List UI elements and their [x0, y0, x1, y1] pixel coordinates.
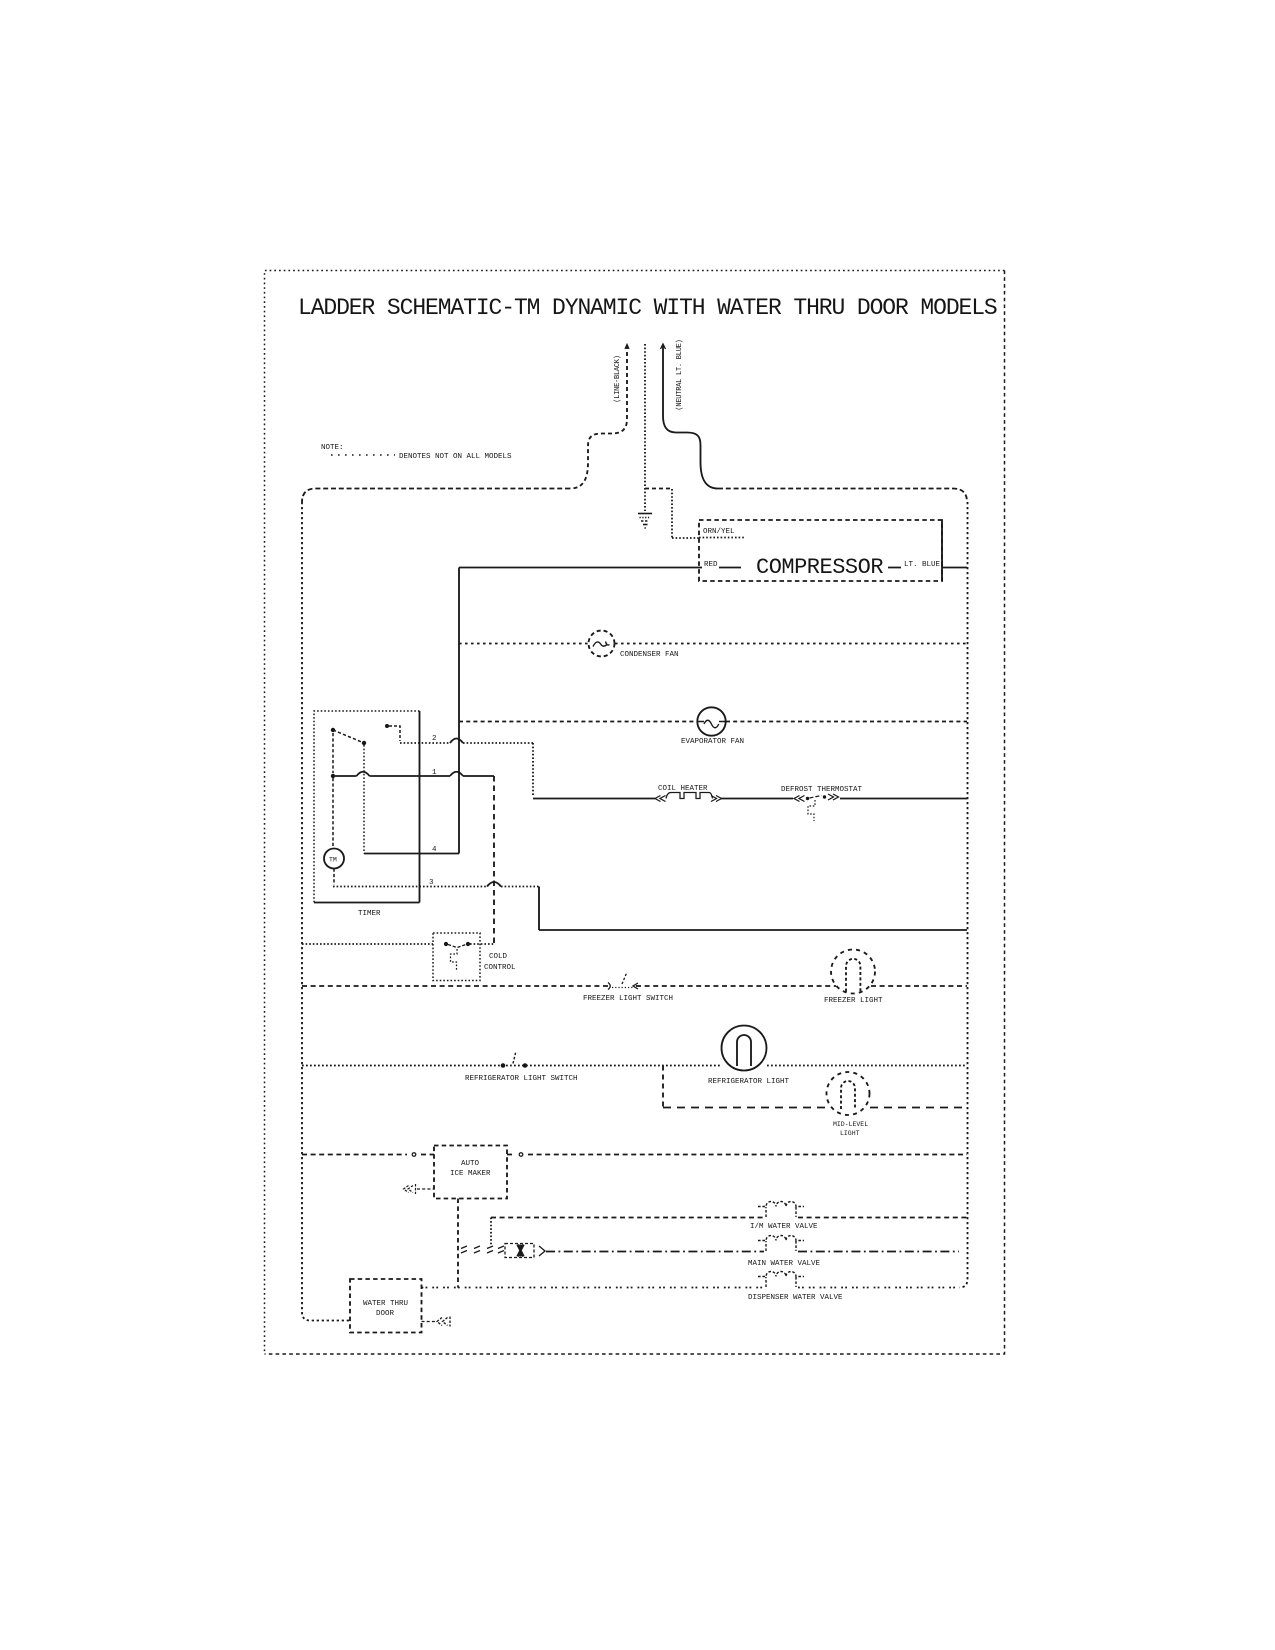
svg-text:MID-LEVEL: MID-LEVEL: [833, 1121, 868, 1128]
svg-text:ICE MAKER: ICE MAKER: [450, 1170, 491, 1178]
svg-text:FREEZER LIGHT: FREEZER LIGHT: [824, 997, 883, 1005]
svg-text:4: 4: [432, 846, 437, 854]
svg-text:RED: RED: [704, 561, 718, 569]
svg-text:(NEUTRAL LT. BLUE): (NEUTRAL LT. BLUE): [676, 339, 684, 410]
svg-text:(LINE-BLACK): (LINE-BLACK): [614, 355, 622, 402]
svg-text:TIMER: TIMER: [358, 910, 381, 918]
svg-text:WATER THRU: WATER THRU: [363, 1300, 408, 1308]
svg-text:CONDENSER FAN: CONDENSER FAN: [620, 651, 679, 659]
svg-text:2: 2: [432, 735, 437, 743]
svg-text:AUTO: AUTO: [461, 1160, 480, 1168]
svg-text:CONTROL: CONTROL: [484, 964, 516, 972]
svg-text:FREEZER LIGHT SWITCH: FREEZER LIGHT SWITCH: [583, 995, 673, 1003]
svg-text:ORN/YEL: ORN/YEL: [703, 528, 735, 536]
svg-text:COIL HEATER: COIL HEATER: [658, 785, 708, 793]
svg-text:EVAPORATOR FAN: EVAPORATOR FAN: [681, 738, 744, 746]
svg-text:MAIN WATER VALVE: MAIN WATER VALVE: [748, 1260, 821, 1268]
svg-text:DENOTES NOT ON ALL MODELS: DENOTES NOT ON ALL MODELS: [399, 453, 512, 461]
svg-text:DISPENSER WATER VALVE: DISPENSER WATER VALVE: [748, 1294, 843, 1302]
svg-text:COLD: COLD: [489, 953, 508, 961]
svg-text:LT. BLUE: LT. BLUE: [904, 561, 941, 569]
svg-text:I/M WATER VALVE: I/M WATER VALVE: [750, 1223, 818, 1231]
svg-text:TM: TM: [329, 857, 337, 864]
svg-text:DOOR: DOOR: [376, 1310, 395, 1318]
svg-text:NOTE:: NOTE:: [321, 444, 344, 452]
svg-text:1: 1: [432, 769, 437, 777]
svg-text:REFRIGERATOR LIGHT: REFRIGERATOR LIGHT: [708, 1078, 790, 1086]
svg-text:LIGHT: LIGHT: [840, 1130, 860, 1137]
svg-text:DEFROST THERMOSTAT: DEFROST THERMOSTAT: [781, 786, 863, 794]
svg-text:LADDER SCHEMATIC-TM DYNAMIC WI: LADDER SCHEMATIC-TM DYNAMIC WITH WATER T…: [298, 295, 997, 321]
svg-text:COMPRESSOR: COMPRESSOR: [756, 555, 883, 580]
svg-text:REFRIGERATOR LIGHT SWITCH: REFRIGERATOR LIGHT SWITCH: [465, 1075, 578, 1083]
svg-text:3: 3: [429, 879, 434, 887]
